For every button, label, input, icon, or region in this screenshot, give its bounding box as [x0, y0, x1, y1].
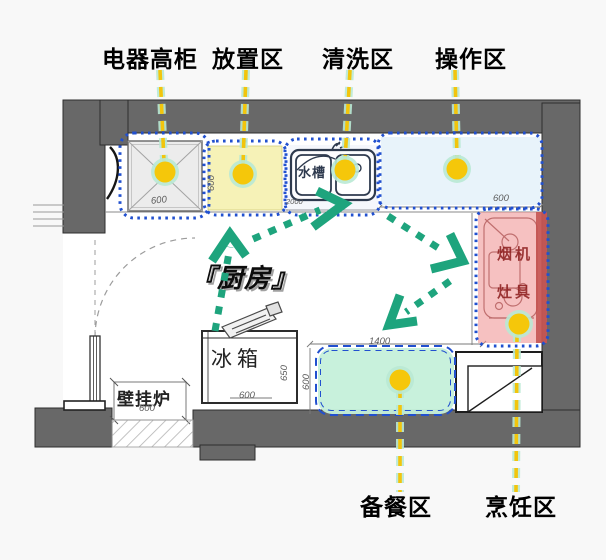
zone-marker-dot	[443, 155, 471, 183]
zone-marker-dot	[151, 158, 179, 186]
zone-marker-dot	[331, 156, 359, 184]
annotation-overlay	[0, 0, 606, 560]
label-appliance-cabinet: 电器高柜	[102, 40, 198, 74]
workflow-arrows	[212, 191, 463, 331]
label-operation-zone: 操作区	[423, 40, 519, 74]
zone-marker-dot	[386, 366, 414, 394]
arrow-to-cooking-head	[431, 234, 463, 269]
arrow-to-sink	[253, 210, 320, 239]
arrow-to-cooking	[388, 216, 440, 249]
zone-marker-dot	[505, 310, 533, 338]
kitchen-zoning-diagram: 『厨房』 冰箱 壁挂炉 水槽 烟机 灶具 600 600 2000 600 14…	[0, 0, 606, 560]
label-cooking-zone: 烹饪区	[473, 488, 569, 522]
label-washing-zone: 清洗区	[310, 40, 406, 74]
zone-marker-dots	[151, 155, 533, 394]
arrow-to-prep-head	[389, 295, 417, 325]
leader-lines	[160, 70, 517, 492]
zone-marker-dot	[229, 160, 257, 188]
label-placement-zone: 放置区	[200, 40, 296, 74]
arrow-to-prep	[406, 281, 450, 312]
label-prep-zone: 备餐区	[348, 488, 444, 522]
